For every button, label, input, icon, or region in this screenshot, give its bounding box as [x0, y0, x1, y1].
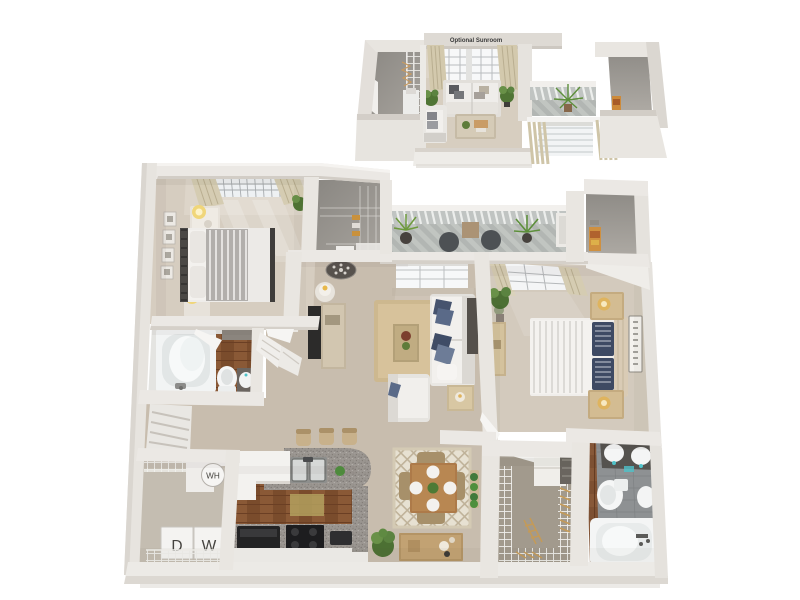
- svg-text:WH: WH: [206, 472, 220, 481]
- svg-text:Optional Sunroom: Optional Sunroom: [450, 38, 502, 44]
